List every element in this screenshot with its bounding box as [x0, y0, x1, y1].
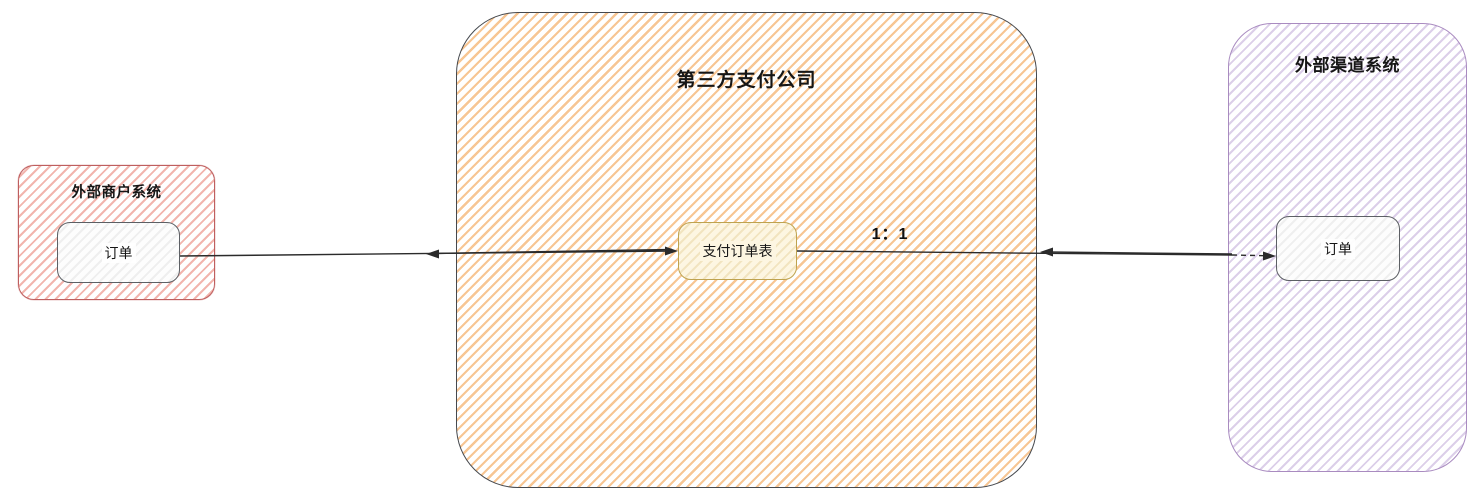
diagram-canvas: 外部商户系统 第三方支付公司 外部渠道系统 订单 支付订单表 订单 — [0, 0, 1481, 492]
ratio-label: 1：1 — [858, 220, 922, 244]
channel-system-title: 外部渠道系统 — [1229, 51, 1466, 76]
channel-order-node[interactable]: 订单 — [1276, 216, 1400, 281]
payment-company-title: 第三方支付公司 — [457, 65, 1036, 92]
payment-order-table-label: 支付订单表 — [700, 241, 776, 261]
merchant-order-label: 订单 — [102, 243, 136, 263]
merchant-order-node[interactable]: 订单 — [57, 222, 180, 283]
merchant-system-title: 外部商户系统 — [19, 181, 214, 202]
channel-order-label: 订单 — [1321, 239, 1355, 259]
payment-order-table-node[interactable]: 支付订单表 — [678, 222, 797, 280]
